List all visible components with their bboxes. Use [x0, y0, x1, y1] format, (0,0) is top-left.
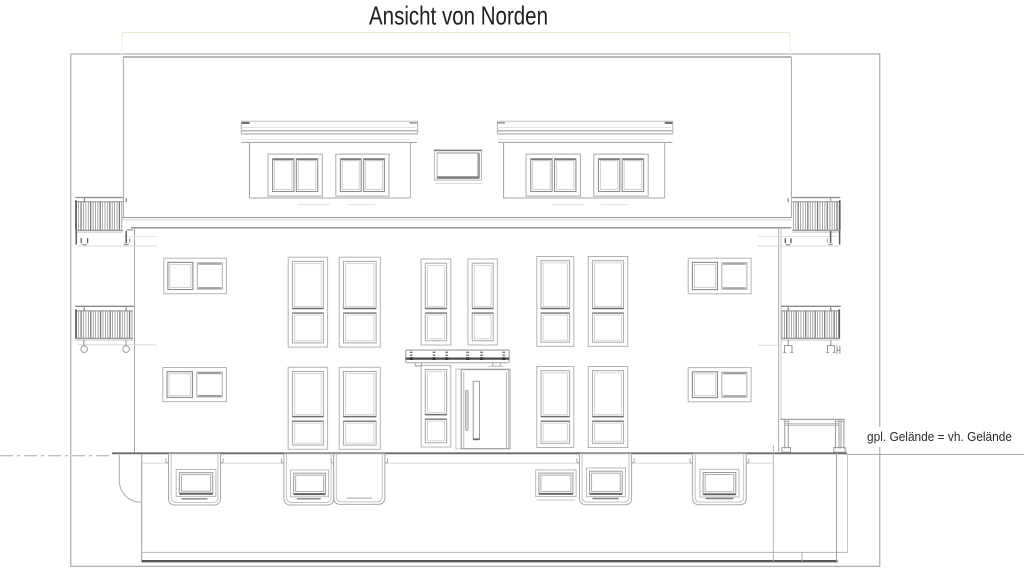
svg-text:Ansicht von Norden: Ansicht von Norden: [369, 1, 548, 31]
svg-text:gpl. Gelände = vh. Gelände: gpl. Gelände = vh. Gelände: [867, 429, 1012, 444]
